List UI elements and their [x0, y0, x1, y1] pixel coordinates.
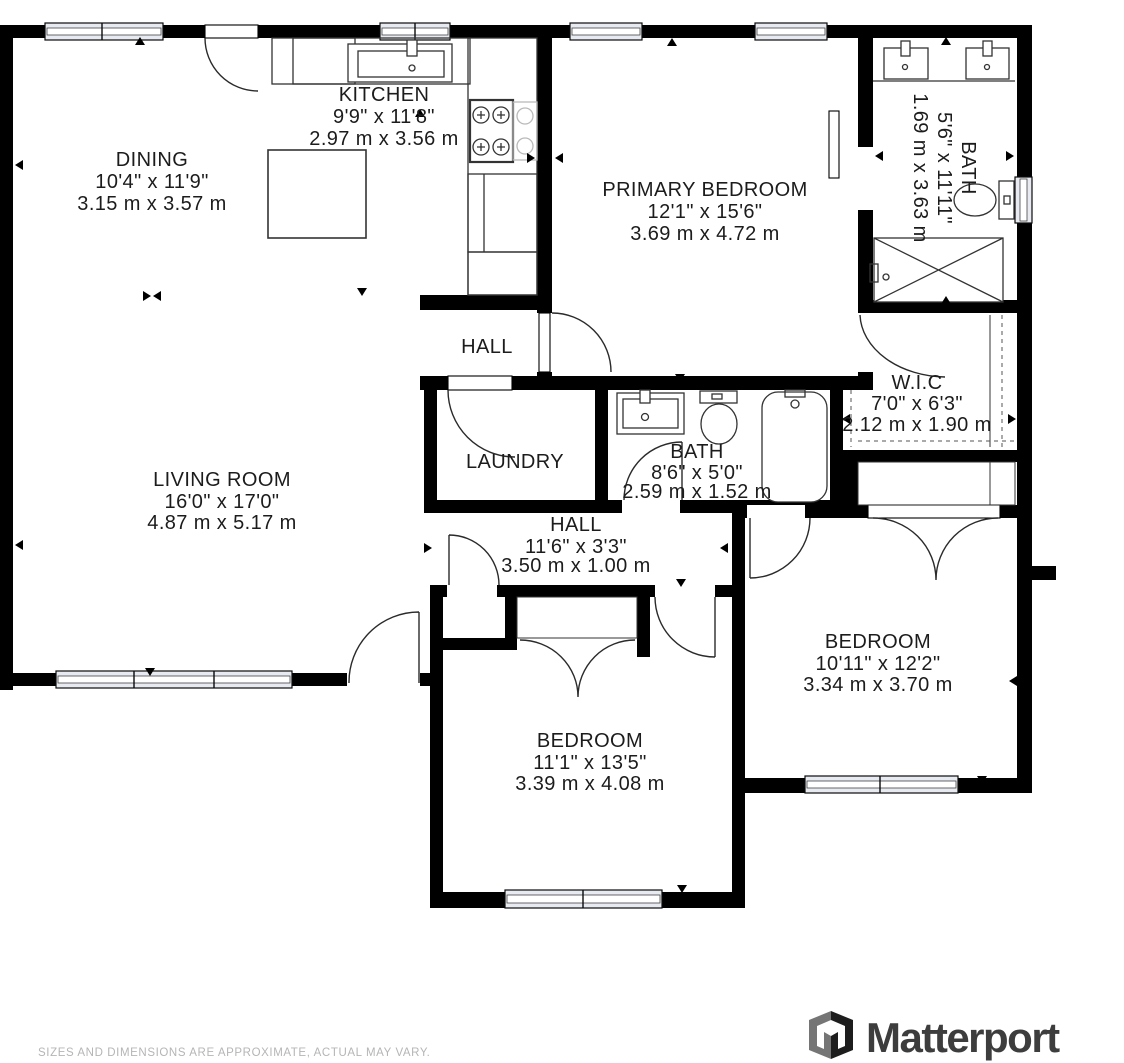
- room-label-bedroom-right: BEDROOM 10'11" x 12'2" 3.34 m x 3.70 m: [803, 631, 952, 696]
- primary-bath-sink-icon: [884, 41, 928, 79]
- room-dims-imperial: 9'9" x 11'8": [333, 106, 435, 128]
- room-dims-metric: 3.69 m x 4.72 m: [630, 223, 779, 245]
- floor-plan-page: DINING 10'4" x 11'9" 3.15 m x 3.57 m KIT…: [0, 0, 1124, 1063]
- bedroom-middle-closet-doors: [517, 597, 637, 697]
- room-label-laundry: LAUNDRY: [466, 451, 564, 473]
- room-dims-imperial: 16'0" x 17'0": [165, 491, 280, 513]
- laundry-door: [448, 376, 515, 457]
- matterport-logo-icon: [809, 1011, 853, 1059]
- room-dims-imperial: 7'0" x 6'3": [871, 393, 963, 415]
- matterport-logo: Matterport: [809, 1011, 1060, 1061]
- room-label-hall-lower: HALL 11'6" x 3'3" 3.50 m x 1.00 m: [501, 514, 650, 577]
- room-label-hall-upper: HALL: [461, 336, 513, 358]
- room-label-bedroom-middle: BEDROOM 11'1" x 13'5" 3.39 m x 4.08 m: [515, 730, 664, 795]
- bath-vanity-sink-icon: [617, 390, 684, 434]
- primary-bedroom-door: [537, 313, 611, 372]
- window-bedroom-right: [805, 776, 958, 793]
- room-dims-metric: 1.69 m x 3.63 m: [909, 93, 931, 242]
- bedroom-right-door: [747, 505, 810, 578]
- hall-closet-door: [447, 535, 499, 597]
- room-name: LAUNDRY: [466, 451, 564, 473]
- room-name: BATH: [670, 441, 723, 463]
- primary-bath-sliding-door: [829, 111, 839, 178]
- footer: SIZES AND DIMENSIONS ARE APPROXIMATE, AC…: [38, 1047, 430, 1059]
- bath-toilet-icon: [700, 391, 737, 444]
- room-dims-imperial: 11'1" x 13'5": [533, 752, 646, 774]
- room-dims-metric: 3.50 m x 1.00 m: [501, 555, 650, 577]
- room-dims-imperial: 5'6" x 11'11": [933, 112, 955, 224]
- bedroom-middle-door: [655, 585, 715, 657]
- room-dims-metric: 2.59 m x 1.52 m: [622, 481, 771, 503]
- kitchen-sink-icon: [348, 40, 452, 82]
- room-dims-metric: 2.97 m x 3.56 m: [309, 128, 458, 150]
- bedroom-right-closet: [858, 462, 1015, 505]
- room-name: W.I.C: [892, 372, 943, 394]
- room-name: BEDROOM: [825, 631, 931, 653]
- kitchen-island: [268, 150, 366, 238]
- room-name: KITCHEN: [339, 84, 430, 106]
- room-label-kitchen: KITCHEN 9'9" x 11'8" 2.97 m x 3.56 m: [309, 84, 458, 150]
- room-label-bath: BATH 8'6" x 5'0" 2.59 m x 1.52 m: [622, 441, 771, 503]
- matterport-wordmark: Matterport: [866, 1014, 1060, 1061]
- room-name: HALL: [550, 514, 602, 536]
- room-name: PRIMARY BEDROOM: [602, 179, 807, 201]
- room-dims-metric: 2.12 m x 1.90 m: [842, 414, 991, 436]
- floor-plan-canvas: DINING 10'4" x 11'9" 3.15 m x 3.57 m KIT…: [0, 0, 1124, 1063]
- front-door: [347, 612, 420, 686]
- room-name: BATH: [957, 141, 979, 194]
- window-living-bottom: [56, 671, 292, 688]
- window-top-dining: [45, 23, 163, 40]
- room-name: BEDROOM: [537, 730, 643, 752]
- room-label-living-room: LIVING ROOM 16'0" x 17'0" 4.87 m x 5.17 …: [147, 469, 296, 534]
- room-dims-imperial: 10'11" x 12'2": [816, 653, 941, 675]
- primary-bath-sink2-icon: [966, 41, 1009, 79]
- room-name: DINING: [116, 149, 188, 171]
- room-label-primary-bath: BATH 5'6" x 11'11" 1.69 m x 3.63 m: [909, 93, 979, 242]
- room-label-dining: DINING 10'4" x 11'9" 3.15 m x 3.57 m: [77, 149, 226, 215]
- disclaimer-text: SIZES AND DIMENSIONS ARE APPROXIMATE, AC…: [38, 1047, 430, 1059]
- room-dims-metric: 3.39 m x 4.08 m: [515, 773, 664, 795]
- wic-door: [858, 315, 945, 377]
- room-label-primary-bedroom: PRIMARY BEDROOM 12'1" x 15'6" 3.69 m x 4…: [602, 179, 807, 245]
- fridge-icon: [468, 174, 537, 295]
- shower-icon: [870, 238, 1003, 302]
- stove-icon: [470, 100, 537, 162]
- back-door: [205, 25, 258, 91]
- room-dims-metric: 4.87 m x 5.17 m: [147, 512, 296, 534]
- room-dims-imperial: 12'1" x 15'6": [648, 201, 763, 223]
- room-name: LIVING ROOM: [153, 469, 291, 491]
- window-top-primary-1: [570, 23, 642, 40]
- window-top-primary-2: [755, 23, 827, 40]
- window-bath-right: [1015, 177, 1032, 223]
- room-dims-metric: 3.34 m x 3.70 m: [803, 674, 952, 696]
- window-bedroom-middle: [505, 890, 662, 908]
- room-name: HALL: [461, 336, 513, 358]
- room-dims-imperial: 10'4" x 11'9": [95, 171, 208, 193]
- bedroom-right-closet-doors: [868, 505, 1000, 580]
- room-dims-metric: 3.15 m x 3.57 m: [77, 193, 226, 215]
- bathtub-icon: [762, 390, 827, 502]
